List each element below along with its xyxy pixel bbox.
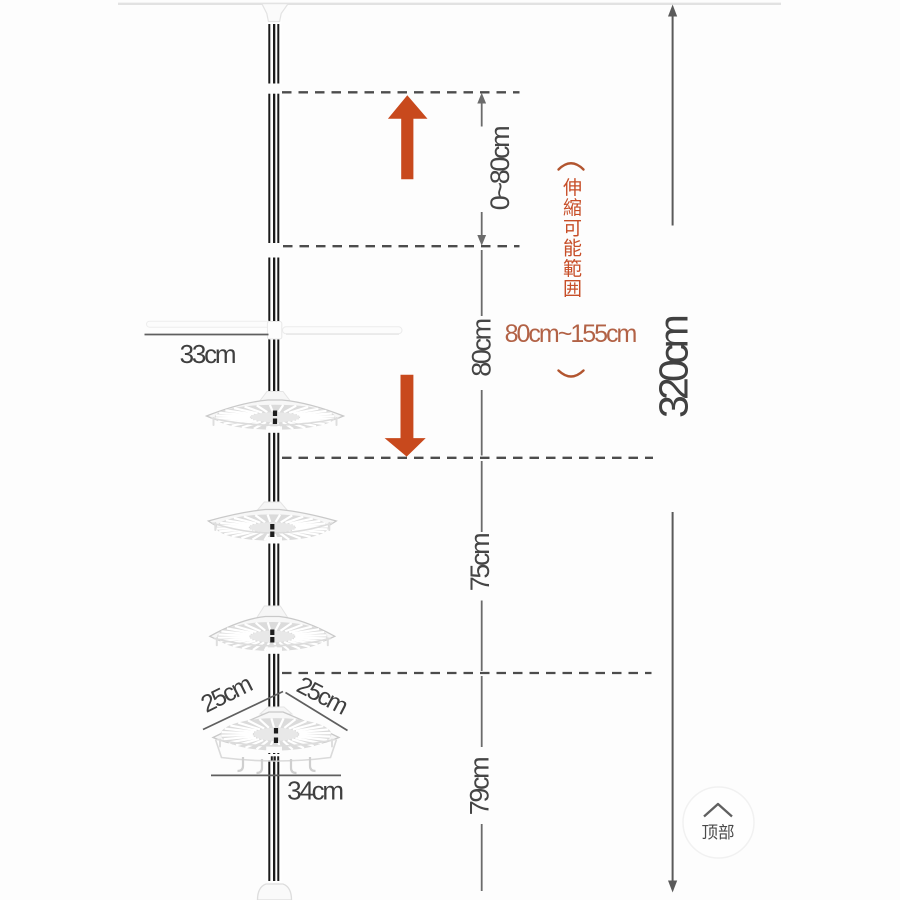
svg-text:縮: 縮 [563, 197, 582, 219]
svg-text:伸: 伸 [563, 177, 582, 199]
svg-text:320cm: 320cm [651, 316, 697, 418]
svg-text:34cm: 34cm [287, 776, 342, 806]
svg-text:79cm: 79cm [465, 758, 495, 815]
svg-text:能: 能 [563, 238, 582, 260]
svg-text:80cm: 80cm [467, 319, 497, 376]
svg-text:顶部: 顶部 [702, 823, 735, 842]
svg-text:80cm~155cm: 80cm~155cm [505, 320, 637, 348]
svg-text:可: 可 [563, 218, 582, 239]
svg-text:範: 範 [563, 258, 582, 280]
svg-text:75cm: 75cm [465, 534, 495, 591]
svg-text:0~80cm: 0~80cm [485, 127, 515, 210]
svg-text:33cm: 33cm [180, 339, 235, 369]
svg-text:囲: 囲 [563, 279, 582, 300]
